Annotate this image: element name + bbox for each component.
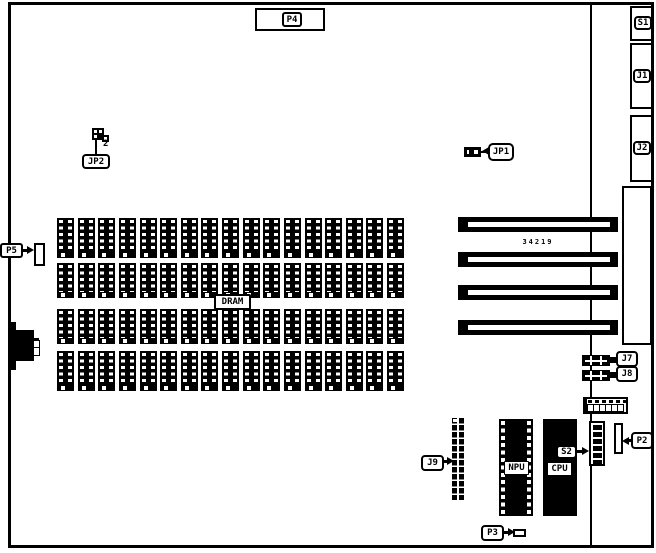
dram-chip — [325, 309, 342, 344]
chip-notch-icon — [102, 386, 106, 390]
chip-notch-icon — [391, 293, 395, 297]
label-dram: DRAM — [214, 294, 251, 310]
dram-chip — [181, 263, 198, 298]
dram-chip — [119, 218, 136, 258]
expansion-slots — [458, 217, 618, 335]
dram-chip — [387, 351, 404, 391]
chip-notch-icon — [123, 339, 127, 343]
dram-chip — [284, 309, 301, 344]
motherboard-diagram: P4 2 JP2 JP1 S1 J1 J2 34219 DRAM P5 J7 J… — [0, 0, 656, 553]
chip-notch-icon — [350, 293, 354, 297]
dram-chip — [222, 218, 239, 258]
chip-notch-icon — [61, 386, 65, 390]
chip-notch-icon — [185, 293, 189, 297]
label-npu: NPU — [504, 461, 529, 475]
chip-notch-icon — [185, 339, 189, 343]
dram-chip — [140, 351, 157, 391]
expansion-slot-key — [468, 222, 610, 227]
s2-arrow-icon — [582, 447, 589, 455]
dram-chip — [305, 263, 322, 298]
dram-chip — [222, 263, 239, 298]
dram-chip — [119, 309, 136, 344]
chip-notch-icon — [309, 386, 313, 390]
expansion-slot — [458, 285, 618, 300]
chip-notch-icon — [164, 386, 168, 390]
chip-notch-icon — [329, 339, 333, 343]
chip-notch-icon — [309, 293, 313, 297]
keyboard-connector-key — [33, 347, 40, 356]
chip-notch-icon — [144, 386, 148, 390]
chip-notch-icon — [247, 339, 251, 343]
chip-notch-icon — [82, 386, 86, 390]
dram-chip — [325, 351, 342, 391]
dram-chip — [98, 351, 115, 391]
label-j9: J9 — [421, 455, 444, 471]
chip-notch-icon — [205, 386, 209, 390]
dram-chip — [366, 218, 383, 258]
label-s2: S2 — [556, 445, 577, 459]
chip-notch-icon — [370, 339, 374, 343]
chip-notch-icon — [247, 386, 251, 390]
chip-notch-icon — [247, 253, 251, 257]
label-j1: J1 — [633, 69, 651, 83]
dram-chip — [98, 263, 115, 298]
dram-chip — [57, 263, 74, 298]
dip-header-bottom-pins — [587, 404, 623, 412]
expansion-slot — [458, 252, 618, 267]
expansion-slot-key — [468, 257, 610, 262]
jumper-jp2-pin-number: 2 — [103, 139, 108, 149]
chip-notch-icon — [205, 339, 209, 343]
chip-notch-icon — [391, 339, 395, 343]
dram-chip — [387, 263, 404, 298]
dip-pin — [616, 400, 620, 403]
chip-notch-icon — [82, 293, 86, 297]
chip-notch-icon — [102, 339, 106, 343]
p2-arrow-icon — [622, 437, 629, 445]
switch-segment — [593, 460, 602, 465]
chip-notch-icon — [144, 293, 148, 297]
dram-chip — [181, 351, 198, 391]
dram-chip — [263, 218, 280, 258]
label-jp2: JP2 — [82, 154, 110, 169]
dram-chip — [263, 351, 280, 391]
dram-chip — [201, 351, 218, 391]
chip-notch-icon — [61, 253, 65, 257]
dram-chip — [98, 309, 115, 344]
jumper-jp1-icon — [464, 147, 481, 157]
dram-chip — [263, 263, 280, 298]
chip-notch-icon — [309, 339, 313, 343]
label-j7: J7 — [616, 351, 638, 367]
bracket-area-outline — [622, 186, 652, 345]
dram-chip — [305, 218, 322, 258]
jumper-j7-icon — [582, 355, 610, 366]
chip-notch-icon — [164, 293, 168, 297]
chip-notch-icon — [350, 253, 354, 257]
chip-notch-icon — [205, 293, 209, 297]
dram-chip — [181, 218, 198, 258]
dram-chip — [160, 263, 177, 298]
switch-segment — [593, 453, 602, 458]
dram-chip — [57, 351, 74, 391]
expansion-slot-key — [468, 290, 610, 295]
chip-notch-icon — [164, 253, 168, 257]
keyboard-connector-body — [9, 330, 34, 361]
dram-chip — [222, 351, 239, 391]
chip-notch-icon — [82, 339, 86, 343]
switch-segment — [593, 446, 602, 451]
chip-notch-icon — [288, 293, 292, 297]
chip-notch-icon — [123, 253, 127, 257]
dram-chip — [140, 309, 157, 344]
chip-notch-icon — [288, 386, 292, 390]
dram-chip — [160, 351, 177, 391]
chip-notch-icon — [226, 386, 230, 390]
dram-row — [57, 263, 404, 298]
chip-notch-icon — [329, 293, 333, 297]
chip-notch-icon — [185, 253, 189, 257]
dram-chip — [387, 309, 404, 344]
chip-notch-icon — [370, 386, 374, 390]
chip-notch-icon — [370, 293, 374, 297]
chip-notch-icon — [329, 386, 333, 390]
dram-chip — [222, 309, 239, 344]
dram-chip — [78, 263, 95, 298]
chip-notch-icon — [102, 253, 106, 257]
dram-chip — [140, 263, 157, 298]
dram-chip — [243, 309, 260, 344]
chip-notch-icon — [391, 386, 395, 390]
dip-pin — [595, 400, 599, 403]
dram-chip — [119, 351, 136, 391]
dram-chip — [78, 218, 95, 258]
dram-chip — [57, 218, 74, 258]
chip-notch-icon — [164, 339, 168, 343]
dram-chip — [325, 218, 342, 258]
chip-notch-icon — [102, 293, 106, 297]
expansion-slot — [458, 320, 618, 335]
chip-notch-icon — [370, 253, 374, 257]
dip-pin — [617, 404, 624, 412]
label-jp1: JP1 — [488, 143, 514, 161]
dip-header-top-pins — [588, 400, 627, 403]
dram-chip — [243, 218, 260, 258]
connector-p5-body — [34, 243, 45, 266]
dram-chip — [284, 263, 301, 298]
p3-arrow-icon — [508, 528, 515, 536]
dram-chip — [243, 351, 260, 391]
dram-chip — [346, 263, 363, 298]
jumper-jp2-icon — [92, 128, 104, 140]
chip-notch-icon — [185, 386, 189, 390]
chip-notch-icon — [267, 339, 271, 343]
chip-notch-icon — [144, 253, 148, 257]
dram-chip — [366, 263, 383, 298]
chip-notch-icon — [61, 293, 65, 297]
chip-notch-icon — [82, 253, 86, 257]
chip-notch-icon — [205, 253, 209, 257]
dram-chip — [284, 351, 301, 391]
dip-header — [583, 397, 628, 414]
dram-chip — [78, 351, 95, 391]
dram-row — [57, 309, 404, 344]
chip-notch-icon — [350, 386, 354, 390]
dram-chip — [387, 218, 404, 258]
p5-arrow-icon — [27, 246, 34, 254]
dram-chip — [140, 218, 157, 258]
dip-pin — [609, 400, 613, 403]
dram-chip — [98, 218, 115, 258]
switch-segment — [593, 425, 602, 430]
dram-chip — [119, 263, 136, 298]
label-p4: P4 — [282, 12, 302, 27]
dip-pin — [602, 400, 606, 403]
dram-chip — [325, 263, 342, 298]
chip-notch-icon — [267, 386, 271, 390]
dram-chip — [243, 263, 260, 298]
switch-s2-body — [589, 421, 605, 466]
chip-notch-icon — [288, 253, 292, 257]
dram-chip — [366, 309, 383, 344]
chip-notch-icon — [226, 339, 230, 343]
label-p5: P5 — [0, 243, 23, 258]
dip-pin — [623, 400, 627, 403]
chip-notch-icon — [309, 253, 313, 257]
dram-chip — [284, 218, 301, 258]
dram-chip — [201, 263, 218, 298]
dram-row — [57, 218, 404, 258]
dram-chip — [305, 351, 322, 391]
expansion-slot-key — [468, 325, 610, 330]
jp2-leader-line — [95, 140, 97, 154]
switch-segment — [593, 439, 602, 444]
chip-notch-icon — [123, 293, 127, 297]
chip-notch-icon — [288, 339, 292, 343]
dram-chip — [201, 309, 218, 344]
label-p2: P2 — [631, 432, 653, 449]
label-p3: P3 — [481, 525, 504, 541]
dram-chip — [346, 309, 363, 344]
chip-notch-icon — [391, 253, 395, 257]
label-cpu: CPU — [547, 462, 572, 476]
dram-chip — [346, 218, 363, 258]
dram-chip — [78, 309, 95, 344]
chip-notch-icon — [267, 253, 271, 257]
chip-notch-icon — [144, 339, 148, 343]
dram-row — [57, 351, 404, 391]
jumper-j8-icon — [582, 370, 610, 381]
dip-pin — [588, 400, 592, 403]
dram-chip — [366, 351, 383, 391]
chip-notch-icon — [267, 293, 271, 297]
chip-notch-icon — [350, 339, 354, 343]
chip-notch-icon — [123, 386, 127, 390]
dram-chip — [346, 351, 363, 391]
label-j8: J8 — [616, 366, 638, 382]
chip-notch-icon — [226, 253, 230, 257]
chip-notch-icon — [329, 253, 333, 257]
dram-chip — [263, 309, 280, 344]
label-s1: S1 — [634, 16, 652, 30]
dram-chip — [201, 218, 218, 258]
expansion-slot — [458, 217, 618, 232]
label-j2: J2 — [633, 141, 651, 155]
dram-chip — [57, 309, 74, 344]
dram-chip — [160, 218, 177, 258]
chip-notch-icon — [61, 339, 65, 343]
dram-chip — [305, 309, 322, 344]
dram-chip — [181, 309, 198, 344]
board-part-number: 34219 — [516, 238, 560, 246]
j9-arrow-icon — [447, 457, 454, 465]
switch-segment — [593, 432, 602, 437]
dram-chip — [160, 309, 177, 344]
